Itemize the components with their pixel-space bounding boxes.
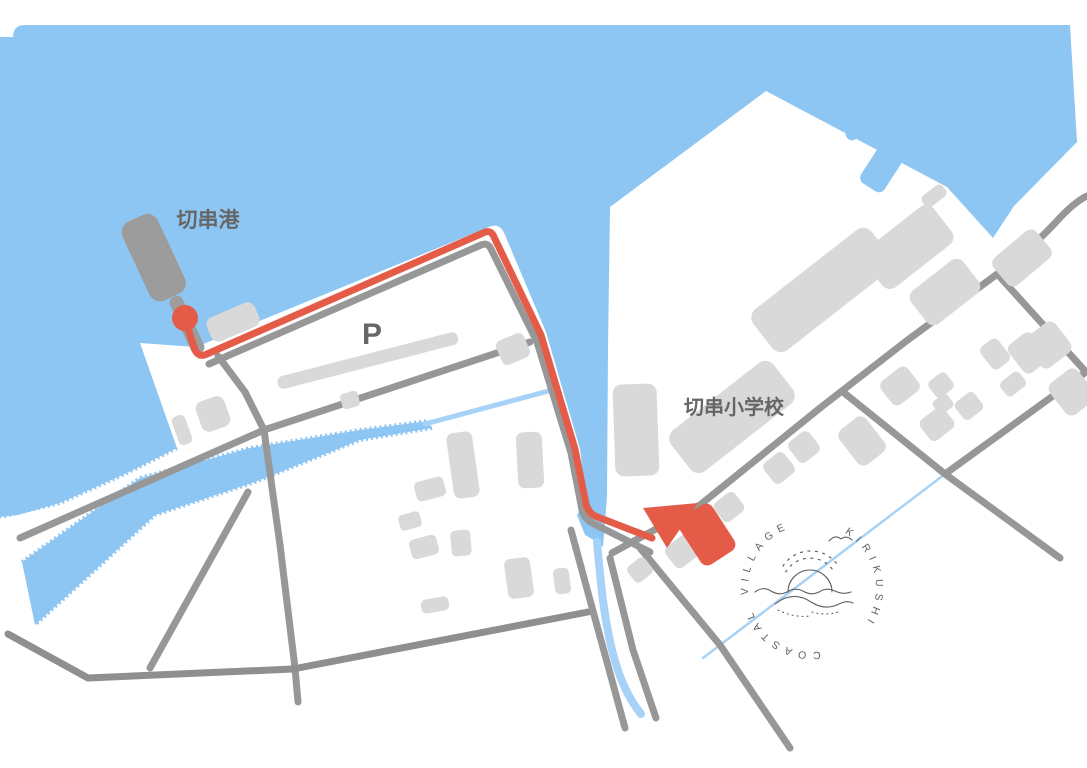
building	[408, 534, 440, 561]
building	[926, 370, 956, 399]
building	[420, 596, 450, 615]
route-start-marker	[172, 305, 198, 331]
building	[877, 364, 922, 409]
map-canvas: 切串港 P 切串小学校 KIRIKUSHI COASTAL VILLAGE	[0, 0, 1087, 768]
canal-thin-stream	[425, 389, 556, 424]
waves-icon	[755, 589, 853, 607]
school-label: 切串小学校	[684, 395, 785, 419]
waves-dots-icon	[778, 610, 838, 616]
building	[998, 370, 1028, 399]
building	[494, 331, 532, 367]
building	[552, 567, 571, 595]
building	[450, 529, 472, 557]
logo-kirikushi-coastal-village: KIRIKUSHI COASTAL VILLAGE	[739, 519, 885, 661]
map-page: 切串港 P 切串小学校 KIRIKUSHI COASTAL VILLAGE	[0, 0, 1087, 768]
building	[397, 510, 422, 531]
building	[612, 383, 659, 476]
building	[446, 431, 481, 500]
building	[978, 336, 1013, 372]
port-label: 切串港	[177, 208, 241, 232]
building	[516, 431, 545, 488]
building	[503, 556, 534, 599]
building	[917, 405, 957, 444]
water-areas	[0, 25, 1077, 714]
logo-arc-word-2: COASTAL	[742, 606, 821, 662]
south-shore-road	[8, 612, 588, 678]
building	[953, 390, 985, 422]
parking-label: P	[362, 318, 382, 351]
logo-arc-word-1: KIRIKUSHI	[843, 525, 885, 630]
building	[413, 475, 447, 502]
logo-arc-word-3: VILLAGE	[739, 519, 792, 595]
diagonal-road-southwest	[150, 492, 248, 668]
building	[193, 394, 232, 434]
